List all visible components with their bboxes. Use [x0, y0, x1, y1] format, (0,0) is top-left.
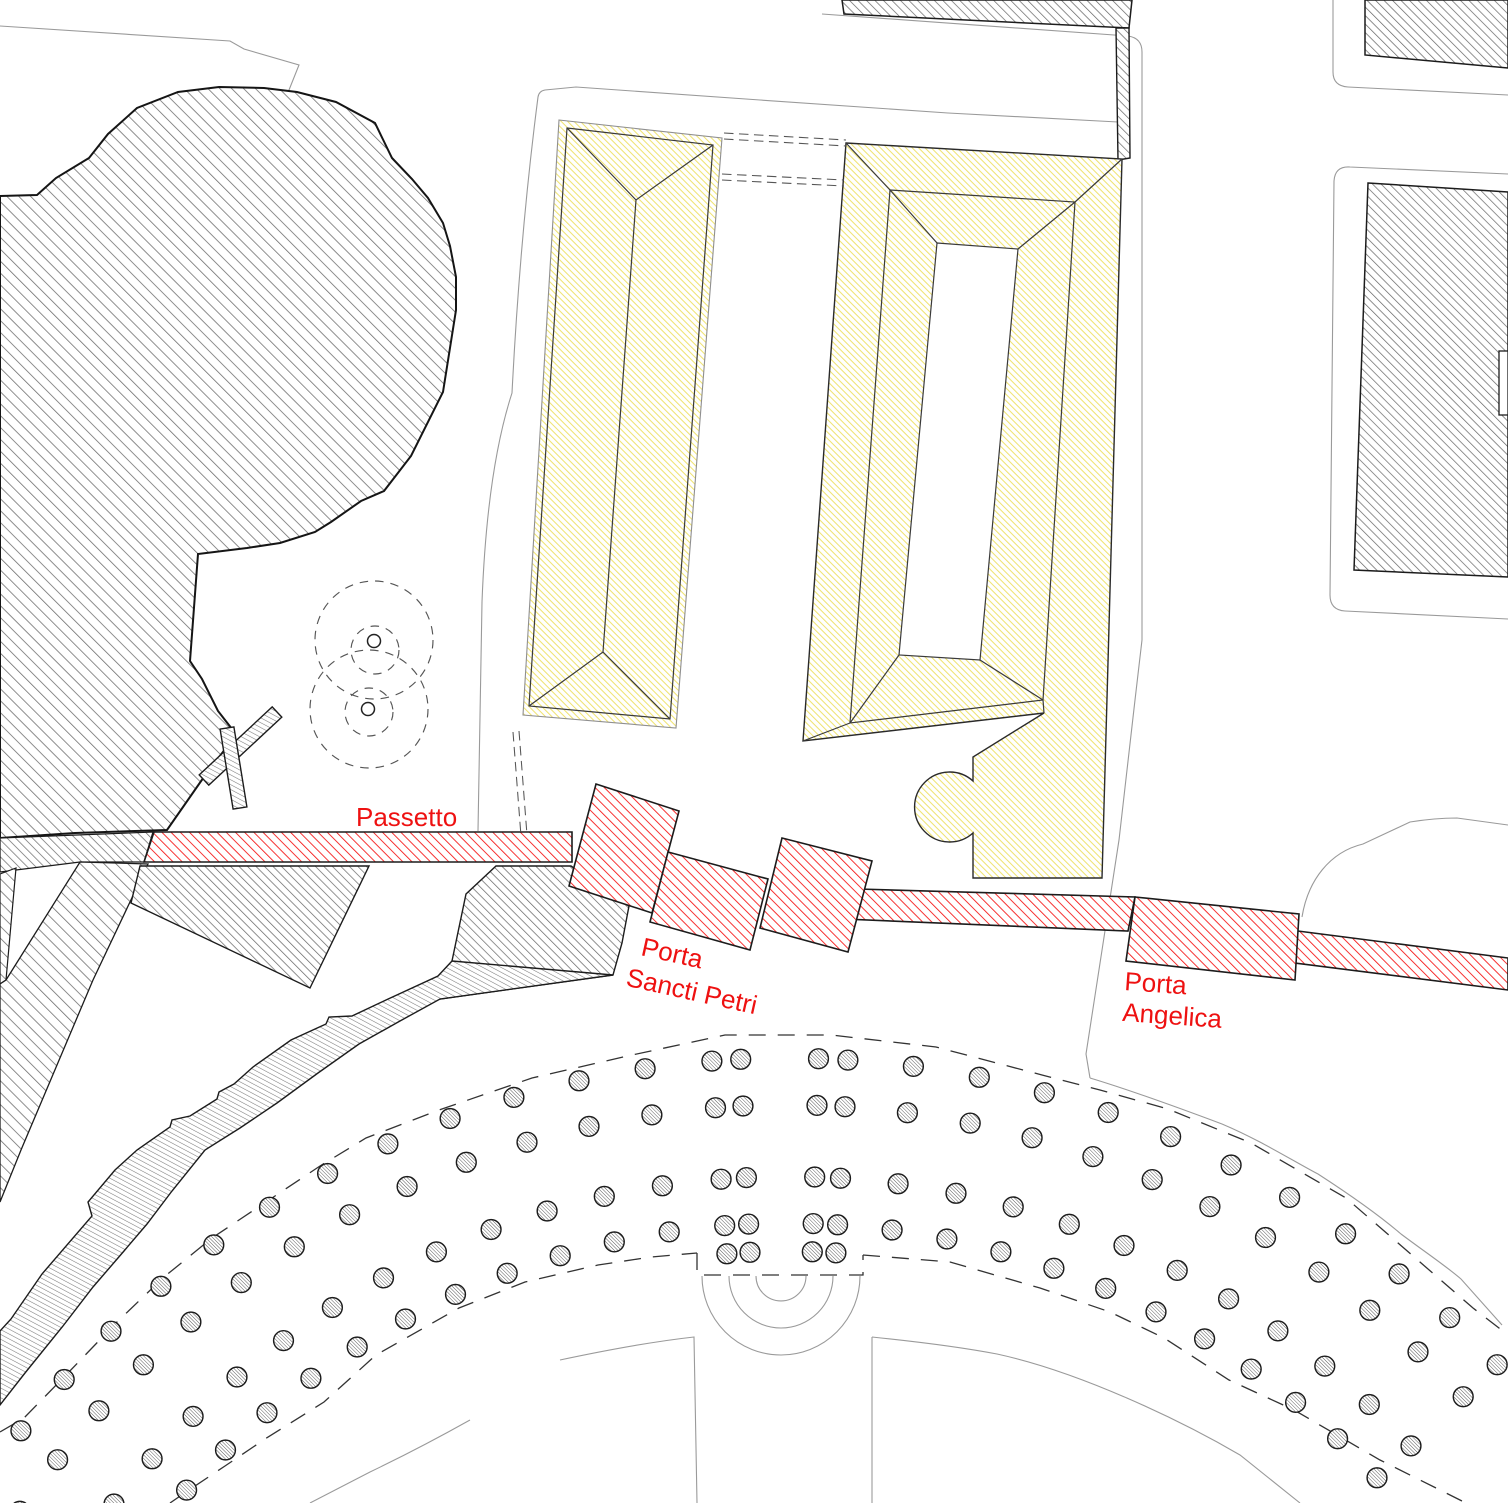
svg-text:Porta: Porta — [1124, 966, 1189, 1000]
svg-text:Passetto: Passetto — [356, 802, 457, 832]
